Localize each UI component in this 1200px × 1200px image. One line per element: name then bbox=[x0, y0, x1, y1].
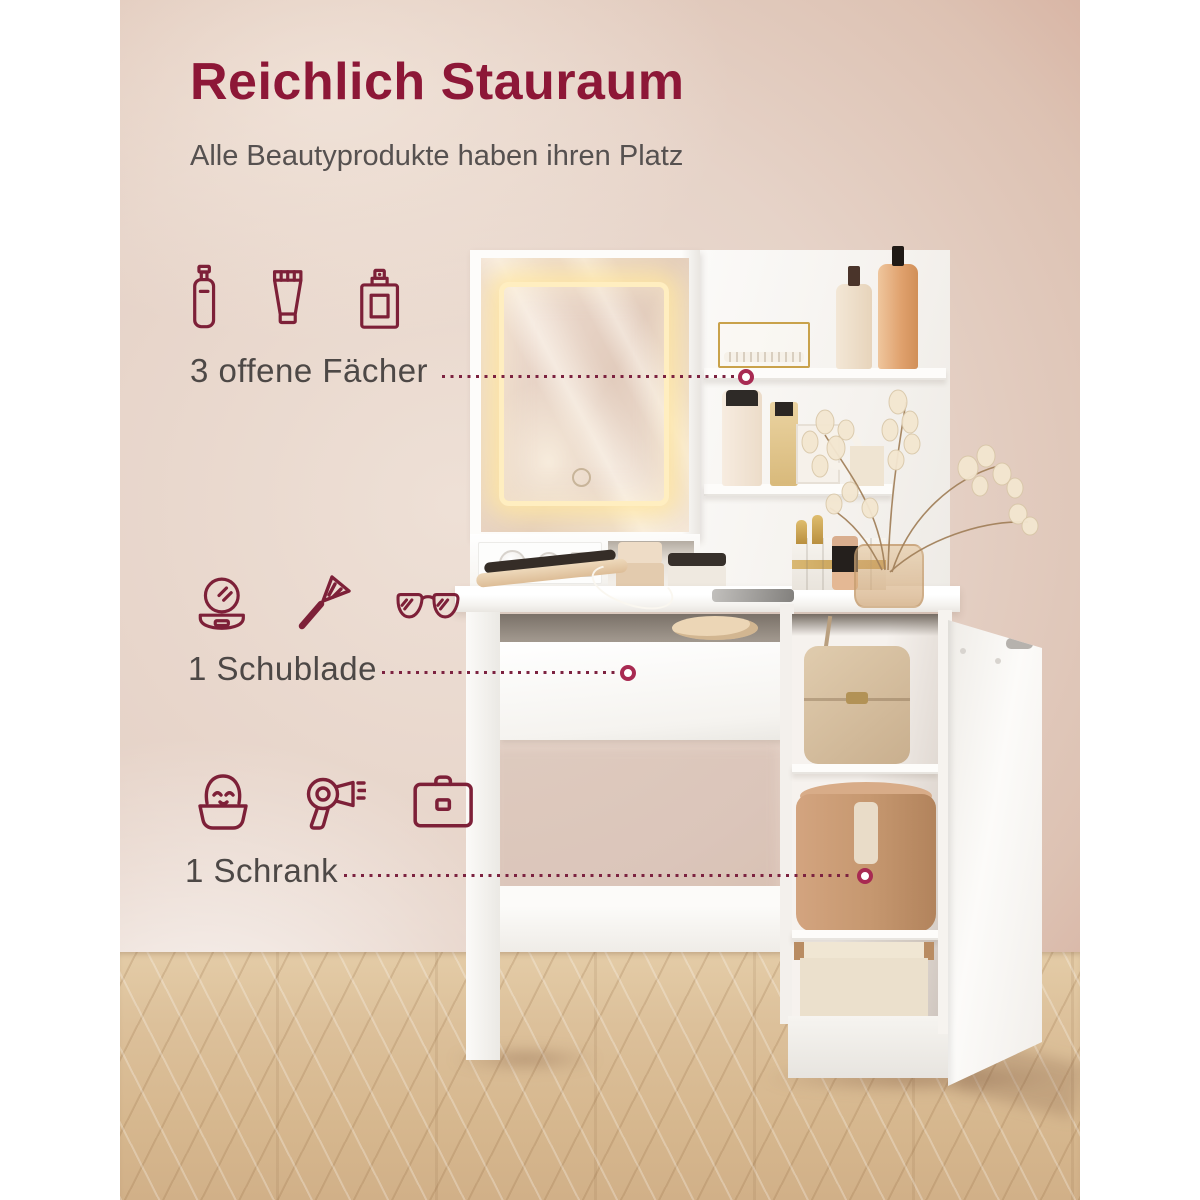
drawer-front bbox=[500, 642, 784, 740]
hatbox-strap bbox=[854, 802, 878, 864]
lotion-bottle-icon bbox=[190, 264, 218, 330]
callout-line-cabinet bbox=[344, 874, 850, 877]
compact-mirror-icon bbox=[190, 574, 252, 632]
handbag-clasp bbox=[846, 692, 868, 704]
gold-jewelry-box bbox=[718, 322, 810, 368]
product-photo-scene: Reichlich Stauraum Alle Beautyprodukte h… bbox=[120, 0, 1080, 1200]
cabinet-plinth bbox=[788, 1016, 962, 1078]
perfume-bottle-icon bbox=[358, 268, 401, 330]
pump-bottle-beige-pump bbox=[848, 266, 860, 286]
mirror-touch-button bbox=[572, 468, 591, 487]
page-subtitle: Alle Beautyprodukte haben ihren Platz bbox=[190, 140, 683, 173]
support-stretcher bbox=[480, 886, 782, 952]
hair-dryer-icon bbox=[300, 770, 366, 832]
feature-icons-shelves bbox=[190, 262, 401, 330]
door-screw-2 bbox=[995, 658, 1001, 664]
callout-ring-drawer bbox=[620, 665, 636, 681]
round-hatbox bbox=[796, 794, 936, 932]
feature-label-shelves: 3 offene Fächer bbox=[190, 352, 428, 390]
powder-jar-lid bbox=[668, 553, 726, 566]
pearl-necklace bbox=[724, 352, 804, 362]
door-screw-1 bbox=[960, 648, 966, 654]
rolled-towel bbox=[672, 616, 758, 640]
pump-bottle-beige bbox=[836, 284, 872, 369]
cabinet-door-open bbox=[948, 612, 1042, 1092]
makeup-brush-icon bbox=[294, 570, 352, 632]
dried-flowers-decor bbox=[730, 380, 1040, 615]
callout-ring-shelves bbox=[738, 369, 754, 385]
cabinet-shelf-2 bbox=[792, 930, 938, 940]
page-title: Reichlich Stauraum bbox=[190, 52, 684, 112]
marketing-page: Reichlich Stauraum Alle Beautyprodukte h… bbox=[0, 0, 1200, 1200]
callout-line-drawer bbox=[382, 671, 616, 674]
storage-box bbox=[800, 958, 928, 1018]
cream-tube-icon bbox=[268, 268, 307, 330]
cabinet-shelf-1 bbox=[792, 764, 938, 774]
briefcase-icon bbox=[410, 774, 476, 832]
feature-icons-drawer bbox=[190, 566, 462, 632]
table-left-leg bbox=[466, 612, 500, 1060]
pump-bottle-orange-pump bbox=[892, 246, 904, 266]
feature-label-drawer: 1 Schublade bbox=[188, 650, 377, 688]
door-damper bbox=[1006, 638, 1033, 649]
pump-bottle-orange bbox=[878, 264, 918, 369]
face-care-icon bbox=[190, 768, 256, 832]
callout-line-shelves bbox=[442, 375, 734, 378]
feature-label-cabinet: 1 Schrank bbox=[185, 852, 338, 890]
cabinet-top-shadow bbox=[792, 614, 938, 636]
handbag bbox=[804, 646, 910, 764]
mirror-glass bbox=[481, 258, 689, 532]
feature-icons-cabinet bbox=[190, 764, 476, 832]
callout-ring-cabinet bbox=[857, 868, 873, 884]
sunglasses-icon bbox=[394, 591, 462, 625]
